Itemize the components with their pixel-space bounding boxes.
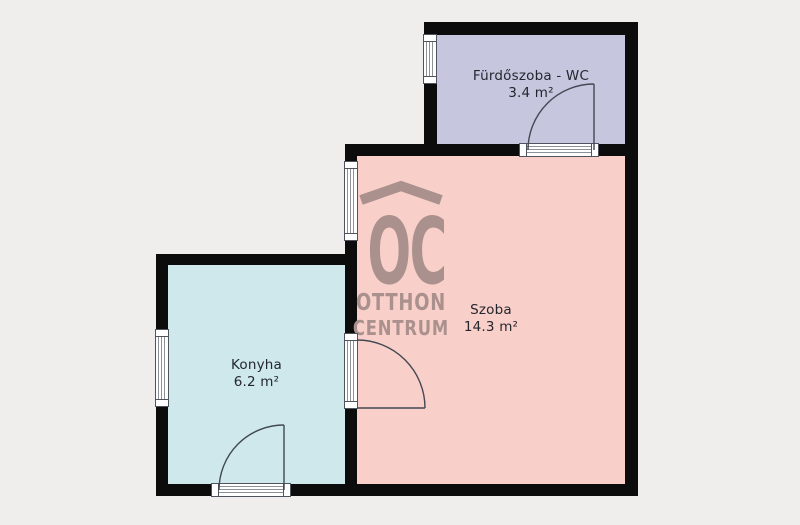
room-name: Szoba: [357, 302, 625, 319]
room-name: Fürdőszoba - WC: [437, 68, 625, 85]
kitchen-entry-door-opening: [211, 483, 291, 497]
room-area: 6.2 m²: [168, 374, 345, 391]
door-threshold: [218, 484, 284, 496]
floorplan-canvas: OC OTTHON CENTRUM Fürdőszoba - WC 3.4 m²…: [0, 0, 800, 525]
bathroom-window: [423, 34, 437, 84]
door-threshold: [345, 340, 357, 402]
kitchen-window: [155, 329, 169, 407]
door-threshold: [526, 144, 592, 156]
window-rails: [156, 336, 168, 400]
kitchen-label: Konyha 6.2 m²: [168, 357, 345, 391]
wall-kitchen-top: [156, 254, 357, 265]
bathroom-label: Fürdőszoba - WC 3.4 m²: [437, 68, 625, 102]
kitchen-living-door-opening: [344, 333, 358, 409]
window-rails: [424, 41, 436, 77]
room-area: 3.4 m²: [437, 85, 625, 102]
window-rails: [345, 168, 357, 234]
wall-bathroom-top: [424, 22, 638, 35]
living-label: Szoba 14.3 m²: [357, 302, 625, 336]
living-window: [344, 161, 358, 241]
room-area: 14.3 m²: [357, 319, 625, 336]
bathroom-door-opening: [519, 143, 599, 157]
room-name: Konyha: [168, 357, 345, 374]
wall-right: [625, 22, 638, 496]
logo-symbol: OC: [367, 204, 434, 300]
